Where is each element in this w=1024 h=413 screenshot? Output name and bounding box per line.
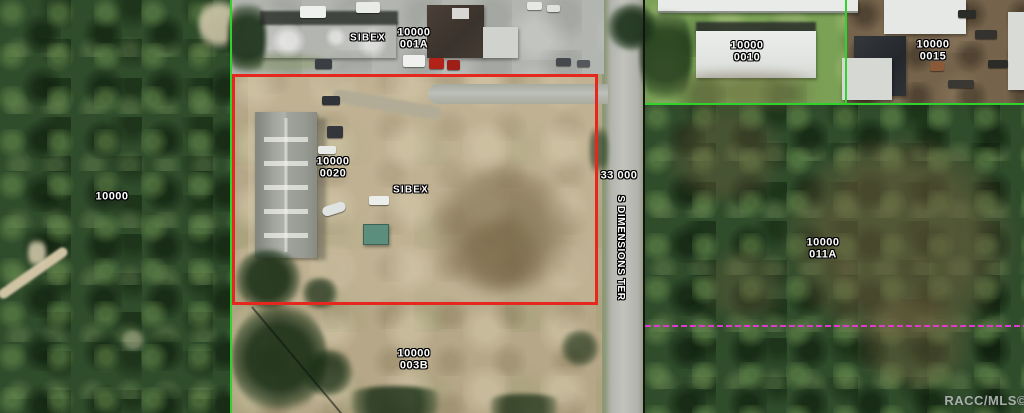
building-edge-strip — [1008, 12, 1024, 90]
label-text: 001A — [397, 39, 430, 51]
equipment — [958, 10, 976, 18]
parcel-label-0020: 10000 0020 — [316, 157, 349, 180]
vehicle-red-truck — [429, 58, 444, 69]
label-text: S DIMENSIONS TER — [614, 195, 626, 300]
road-frontage-label-33000: 33 000 — [601, 170, 638, 182]
owner-label-sibex-top: SIBEX — [350, 32, 386, 44]
parcel-label-011a: 10000 011A — [806, 238, 839, 261]
tree-clump — [335, 386, 455, 413]
parcel-label-0010: 10000 0010 — [730, 41, 763, 64]
vehicle — [527, 2, 542, 10]
road-name-label: S DIMENSIONS TER — [614, 195, 626, 300]
building-light-gray-0015 — [842, 58, 892, 100]
forest-area-west — [0, 0, 232, 413]
sand-patch — [120, 330, 146, 350]
building-light-gray — [483, 27, 518, 58]
parcel-boundary-green-east-horizontal — [643, 103, 1024, 105]
parcel-label-003b: 10000 003B — [397, 349, 430, 372]
parcel-label-10000-west: 10000 — [95, 191, 128, 203]
parcel-label-0015: 10000 0015 — [916, 40, 949, 63]
label-text: 10000 — [397, 349, 430, 361]
building-white-0015 — [884, 0, 966, 34]
parcel-boundary-black-road — [643, 0, 645, 413]
brown-patch — [850, 300, 980, 385]
vehicle — [577, 60, 590, 67]
building-strip-north — [658, 0, 858, 13]
boundary-magenta-dashed — [645, 325, 1024, 327]
map-canvas[interactable]: SIBEX 10000 001A 10000 0010 10000 0015 1… — [0, 0, 1024, 413]
label-text: 0015 — [916, 51, 949, 63]
equipment — [988, 60, 1008, 68]
equipment — [975, 30, 997, 39]
roof-vent — [452, 8, 469, 19]
tree-clump — [560, 330, 600, 366]
sand-trail — [28, 236, 46, 270]
vehicle — [356, 2, 380, 13]
brown-patch — [700, 250, 790, 320]
parcel-boundary-green-northeast — [845, 0, 847, 105]
label-text: 0010 — [730, 52, 763, 64]
brown-patch — [660, 110, 790, 200]
label-text: 10000 — [730, 41, 763, 53]
label-text: 10000 — [397, 28, 430, 40]
label-text: 10000 — [95, 191, 128, 203]
watermark: RACC/MLS© — [944, 393, 1024, 408]
vehicle — [547, 5, 560, 12]
tree-clump — [606, 4, 658, 50]
label-text: 33 000 — [601, 170, 638, 182]
parcel-label-001a: 10000 001A — [397, 28, 430, 51]
equipment — [948, 80, 974, 88]
label-text: SIBEX — [393, 184, 429, 196]
vehicle-van — [403, 55, 425, 67]
vehicle-red-truck — [447, 60, 460, 70]
tree-clump — [478, 394, 570, 413]
label-text: 10000 — [316, 157, 349, 169]
label-text: 10000 — [916, 40, 949, 52]
vehicle — [556, 58, 571, 66]
owner-label-sibex-center: SIBEX — [393, 184, 429, 196]
equipment — [930, 62, 944, 71]
label-text: 0020 — [316, 168, 349, 180]
label-text: 011A — [806, 249, 839, 261]
vehicle — [300, 6, 326, 18]
label-text: SIBEX — [350, 32, 386, 44]
label-text: 003B — [397, 360, 430, 372]
vehicle — [315, 59, 332, 69]
label-text: 10000 — [806, 238, 839, 250]
